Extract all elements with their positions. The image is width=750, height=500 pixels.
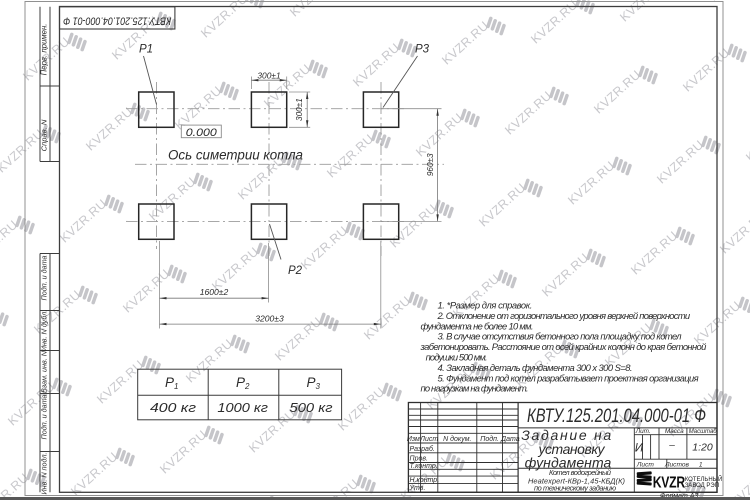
- svg-text:Инв. N подл.: Инв. N подл.: [40, 452, 49, 494]
- svg-text:–: –: [668, 440, 675, 451]
- svg-text:Пров.: Пров.: [410, 455, 429, 462]
- svg-text:КВТУ.125.201.04.000-01 Ф: КВТУ.125.201.04.000-01 Ф: [63, 15, 171, 27]
- svg-text:Лит.: Лит.: [635, 428, 651, 435]
- svg-text:0.000: 0.000: [186, 127, 218, 139]
- svg-text:Масштаб: Масштаб: [689, 427, 717, 435]
- svg-text:300±1: 300±1: [257, 70, 280, 80]
- svg-text:Подп. и дата: Подп. и дата: [40, 256, 49, 301]
- svg-text:4. Закладная деталь фундамента: 4. Закладная деталь фундамента 300 x 300…: [438, 362, 633, 373]
- svg-text:1000 кг: 1000 кг: [217, 400, 268, 415]
- svg-text:P1: P1: [165, 375, 178, 391]
- svg-text:забетонировать. Расстояние от: забетонировать. Расстояние от осей крайн…: [420, 341, 708, 352]
- svg-text:Ось симетрии котла: Ось симетрии котла: [168, 148, 303, 163]
- svg-text:Н.контр.: Н.контр.: [410, 477, 440, 484]
- svg-text:Подп. и дата: Подп. и дата: [40, 395, 49, 440]
- svg-text:5. Фундамент под котел разраба: 5. Фундамент под котел разрабатывает про…: [438, 372, 699, 383]
- svg-text:Утв.: Утв.: [409, 485, 426, 492]
- svg-text:Лист: Лист: [636, 462, 654, 469]
- svg-text:Разраб.: Разраб.: [410, 445, 435, 453]
- svg-text:P1: P1: [139, 44, 153, 56]
- svg-text:P3: P3: [307, 375, 321, 391]
- svg-text:по нагрузкам на фундамент.: по нагрузкам на фундамент.: [421, 383, 529, 394]
- svg-text:960±3: 960±3: [426, 153, 435, 176]
- svg-text:КВТУ.125.201.04.000-01 Ф: КВТУ.125.201.04.000-01 Ф: [527, 406, 706, 427]
- svg-text:ЗАВОД РЭП: ЗАВОД РЭП: [685, 483, 719, 489]
- svg-text:И: И: [635, 442, 644, 454]
- svg-text:Взам. инв. N: Взам. инв. N: [40, 350, 49, 393]
- svg-text:P2: P2: [288, 265, 303, 277]
- svg-text:300±1: 300±1: [295, 98, 304, 121]
- svg-text:500 кг: 500 кг: [290, 400, 334, 415]
- svg-text:Дата: Дата: [500, 436, 520, 443]
- svg-text:Листов: Листов: [664, 462, 690, 469]
- svg-text:Подп.: Подп.: [480, 435, 499, 443]
- svg-text:Инв. N дубл.: Инв. N дубл.: [40, 310, 49, 352]
- svg-text:1: 1: [699, 462, 703, 469]
- svg-text:Перв. примен.: Перв. примен.: [40, 24, 49, 76]
- svg-text:Лист: Лист: [419, 436, 438, 443]
- svg-text:3200±3: 3200±3: [255, 313, 284, 323]
- svg-text:КОТЕЛЬНЫЙ: КОТЕЛЬНЫЙ: [685, 475, 723, 483]
- svg-text:фундамента не более 10 мм.: фундамента не более 10 мм.: [421, 320, 534, 331]
- svg-text:1. *Размер для справок.: 1. *Размер для справок.: [438, 300, 533, 311]
- svg-text:по техническому заданию: по техническому заданию: [534, 484, 616, 493]
- svg-text:KVZR: KVZR: [653, 474, 685, 492]
- svg-text:P3: P3: [415, 44, 430, 56]
- svg-text:подушки 500 мм.: подушки 500 мм.: [426, 352, 488, 363]
- svg-text:2. Отклонение от горизонтально: 2. Отклонение от горизонтального уровня …: [437, 310, 691, 321]
- svg-text:Справ. N: Справ. N: [40, 119, 49, 151]
- svg-text:P2: P2: [236, 375, 250, 391]
- svg-text:3. В случае отсутствия бетонно: 3. В случае отсутствия бетонного пола пл…: [438, 331, 683, 342]
- svg-text:1:20: 1:20: [692, 442, 713, 454]
- svg-text:N докум.: N докум.: [443, 435, 471, 443]
- svg-text:Т.контр.: Т.контр.: [410, 463, 438, 470]
- svg-text:1600±2: 1600±2: [200, 287, 229, 297]
- svg-text:Масса: Масса: [665, 428, 684, 435]
- svg-text:400 кг: 400 кг: [150, 400, 197, 415]
